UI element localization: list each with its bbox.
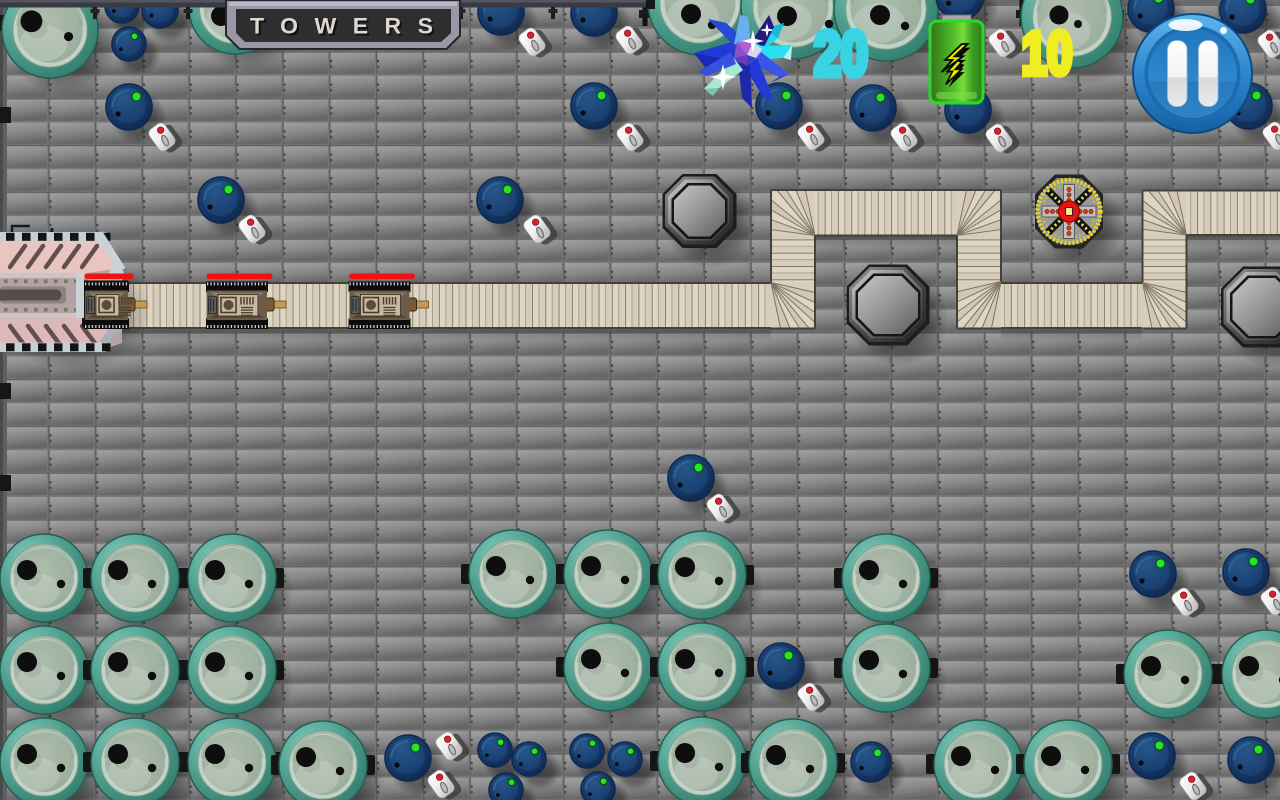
svg-text:TOWERS: TOWERS — [250, 14, 449, 38]
svg-text:20: 20 — [814, 19, 868, 88]
svg-text:10: 10 — [1022, 21, 1073, 87]
